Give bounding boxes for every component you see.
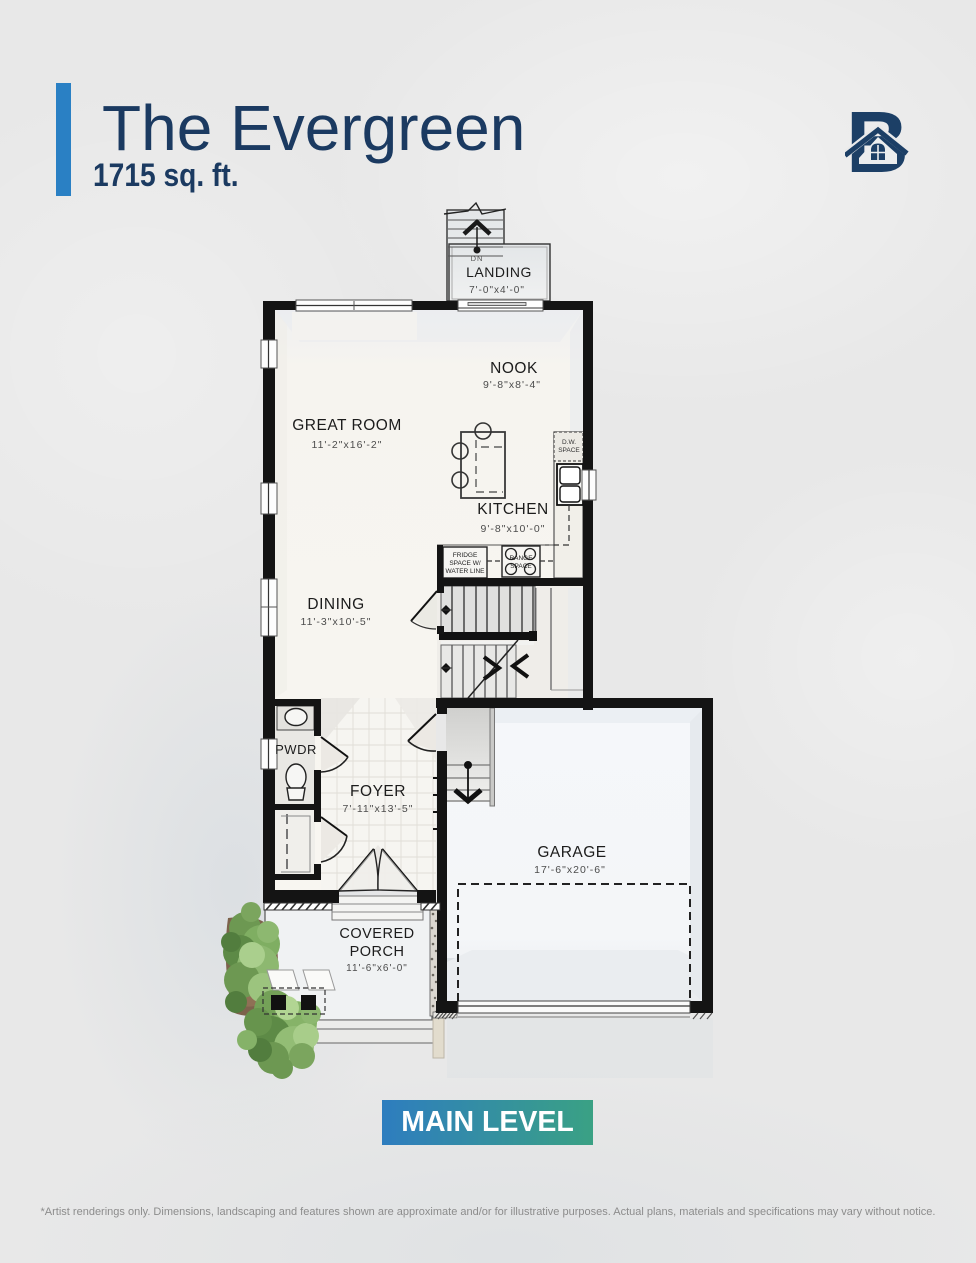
svg-text:11'-3"x10'-5": 11'-3"x10'-5"	[301, 616, 372, 628]
svg-text:PORCH: PORCH	[350, 944, 405, 960]
svg-text:COVERED: COVERED	[339, 926, 414, 942]
svg-text:NOOK: NOOK	[490, 360, 538, 377]
svg-text:SPACE W/: SPACE W/	[449, 560, 480, 567]
svg-text:FRIDGE: FRIDGE	[453, 552, 478, 559]
svg-text:DINING: DINING	[307, 596, 364, 613]
svg-text:DN: DN	[471, 254, 484, 263]
svg-text:11'-6"x6'-0": 11'-6"x6'-0"	[346, 963, 408, 974]
svg-text:D.W.: D.W.	[562, 439, 576, 446]
svg-text:KITCHEN: KITCHEN	[477, 501, 549, 518]
svg-text:9'-8"x8'-4": 9'-8"x8'-4"	[483, 379, 541, 391]
svg-text:17'-6"x20'-6": 17'-6"x20'-6"	[534, 864, 606, 876]
svg-text:RANGE: RANGE	[509, 555, 533, 562]
svg-text:LANDING: LANDING	[466, 264, 532, 280]
svg-text:GARAGE: GARAGE	[537, 844, 606, 861]
svg-text:7'-11"x13'-5": 7'-11"x13'-5"	[343, 803, 414, 815]
svg-text:7'-0"x4'-0": 7'-0"x4'-0"	[469, 285, 525, 296]
svg-text:FOYER: FOYER	[350, 783, 406, 800]
svg-text:GREAT ROOM: GREAT ROOM	[292, 417, 402, 434]
svg-text:PWDR: PWDR	[275, 742, 317, 757]
svg-text:SPACE: SPACE	[510, 563, 532, 570]
svg-text:SPACE: SPACE	[558, 447, 580, 454]
svg-text:9'-8"x10'-0": 9'-8"x10'-0"	[481, 523, 546, 535]
svg-text:WATER LINE: WATER LINE	[445, 568, 485, 575]
svg-text:11'-2"x16'-2": 11'-2"x16'-2"	[312, 439, 383, 451]
